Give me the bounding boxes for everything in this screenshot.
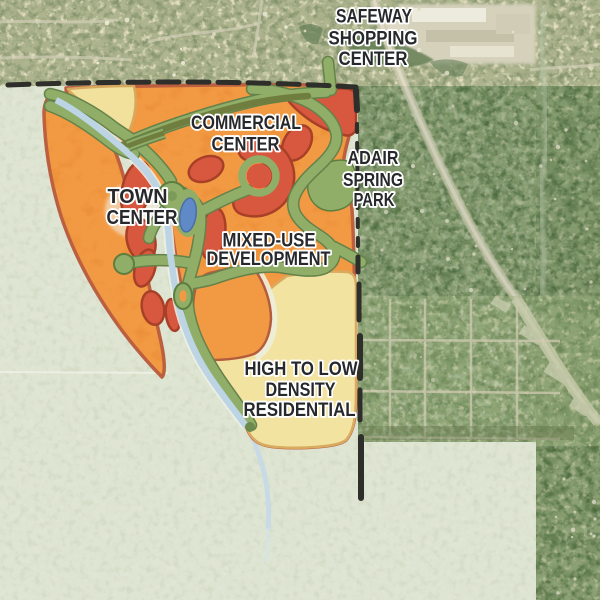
svg-text:CENTER: CENTER: [107, 207, 178, 229]
svg-text:PARK: PARK: [354, 190, 395, 210]
svg-text:CENTER: CENTER: [212, 135, 280, 156]
svg-text:RESIDENTIAL: RESIDENTIAL: [244, 400, 356, 421]
svg-text:SAFEWAY: SAFEWAY: [336, 7, 412, 28]
svg-text:HIGH TO LOW: HIGH TO LOW: [245, 359, 358, 380]
svg-text:COMMERCIAL: COMMERCIAL: [191, 113, 301, 134]
svg-text:DEVELOPMENT: DEVELOPMENT: [207, 249, 331, 270]
svg-text:CENTER: CENTER: [339, 49, 408, 70]
svg-text:ADAIR: ADAIR: [348, 148, 399, 168]
svg-text:SHOPPING: SHOPPING: [329, 29, 418, 50]
svg-text:TOWN: TOWN: [108, 186, 168, 208]
svg-text:DENSITY: DENSITY: [266, 380, 336, 401]
svg-text:SPRING: SPRING: [343, 170, 403, 190]
